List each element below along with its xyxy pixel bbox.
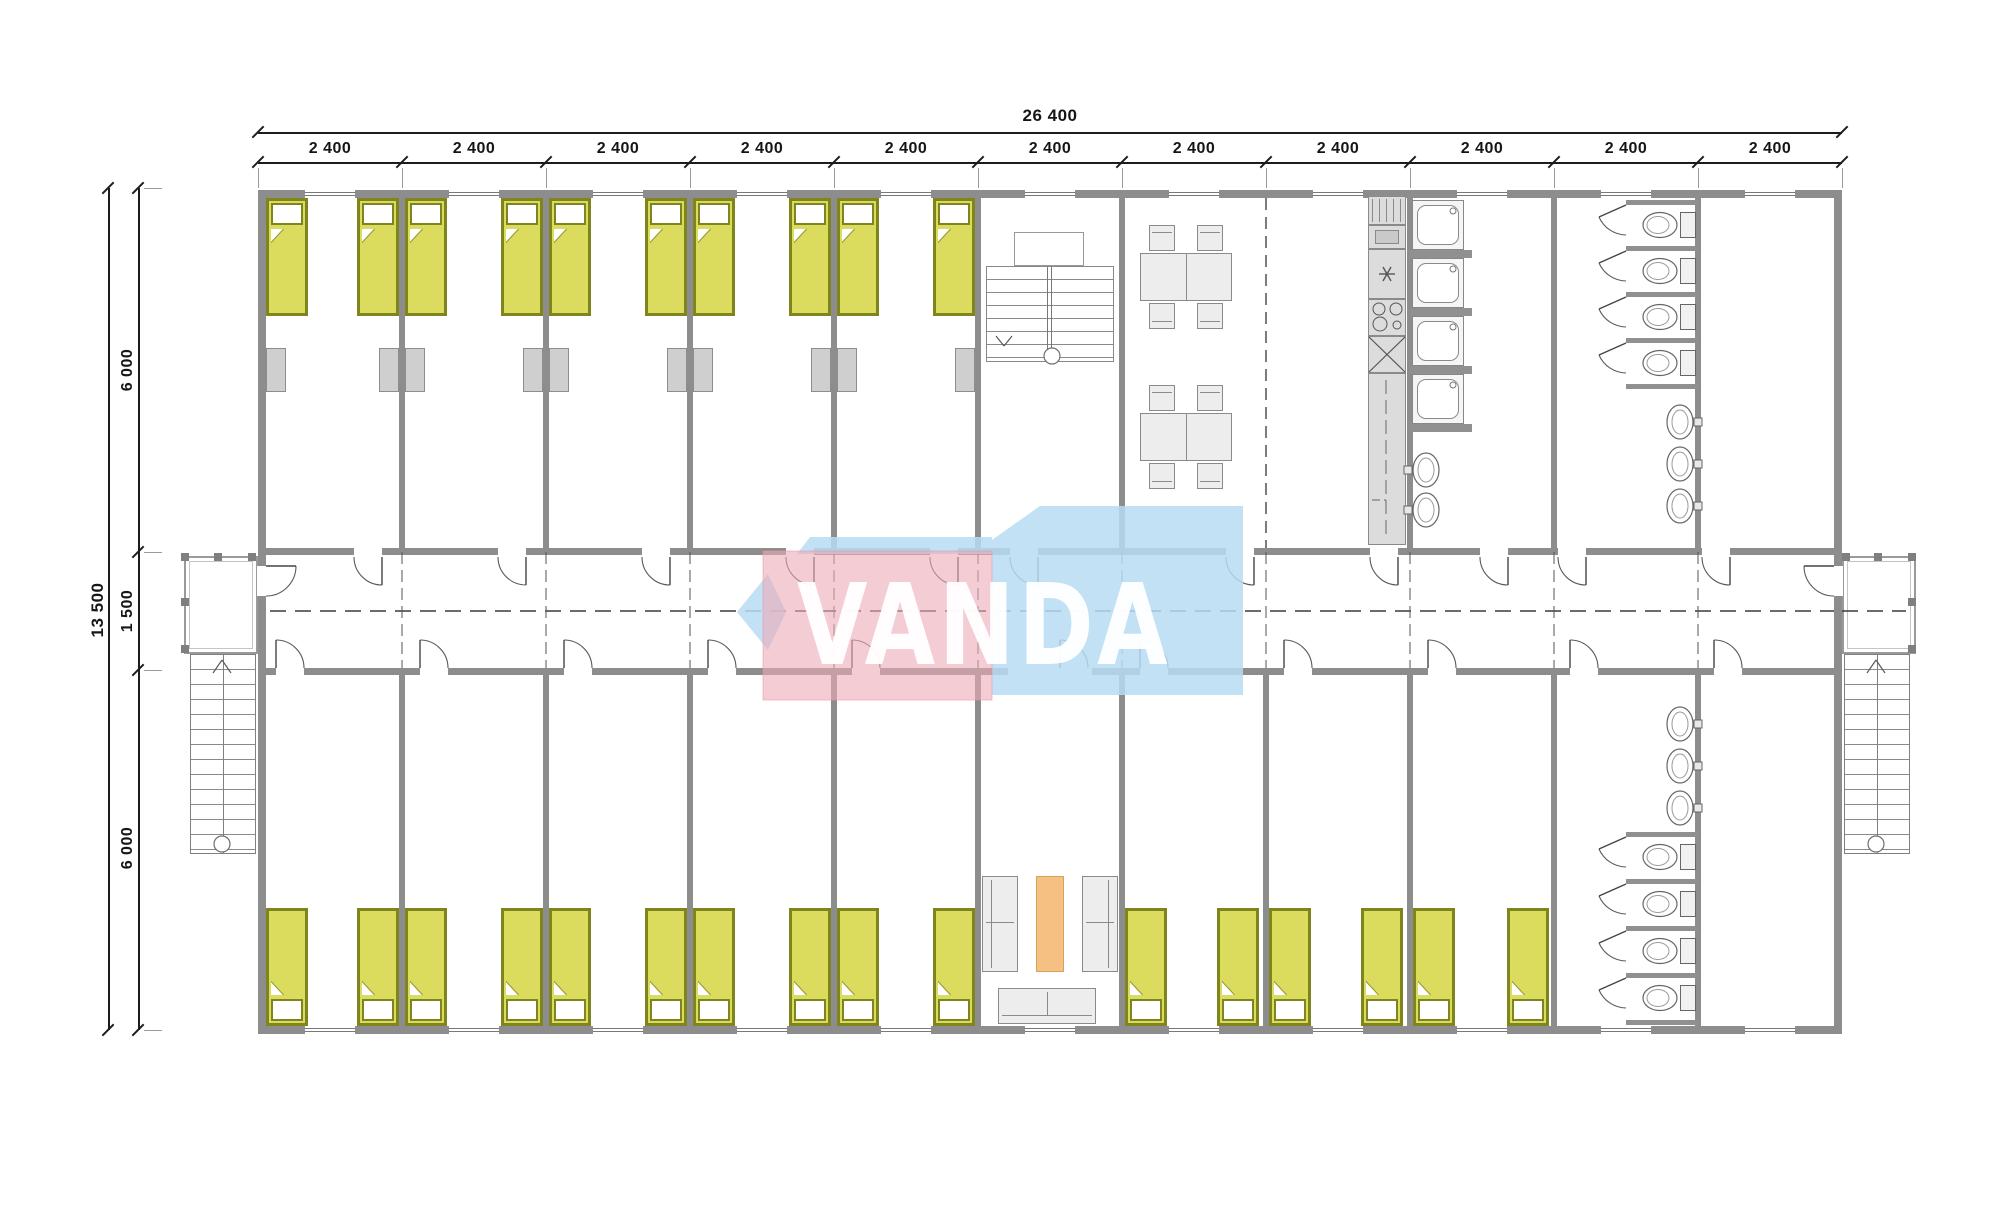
bay-dim-label: 2 400 [1698,140,1842,158]
bay-dim-label: 2 400 [1122,140,1266,158]
bay-dim-label: 2 400 [834,140,978,158]
dim-upper-zone-label: 6 000 [119,310,137,430]
bay-dim-label: 2 400 [546,140,690,158]
bay-dim-label: 2 400 [1266,140,1410,158]
bay-dim-label: 2 400 [1554,140,1698,158]
floor-plan: VANDA 26 400 2 4002 4002 4002 4002 4002 … [0,0,2000,1215]
bay-dim-label: 2 400 [690,140,834,158]
bay-dimension-labels: 2 4002 4002 4002 4002 4002 4002 4002 400… [0,0,2000,1215]
bay-dim-label: 2 400 [1410,140,1554,158]
dim-corridor-label: 1 500 [119,551,137,671]
dim-total-height-label: 13 500 [88,550,108,670]
bay-dim-label: 2 400 [258,140,402,158]
bay-dim-label: 2 400 [978,140,1122,158]
dim-lower-zone-label: 6 000 [119,788,137,908]
bay-dim-label: 2 400 [402,140,546,158]
